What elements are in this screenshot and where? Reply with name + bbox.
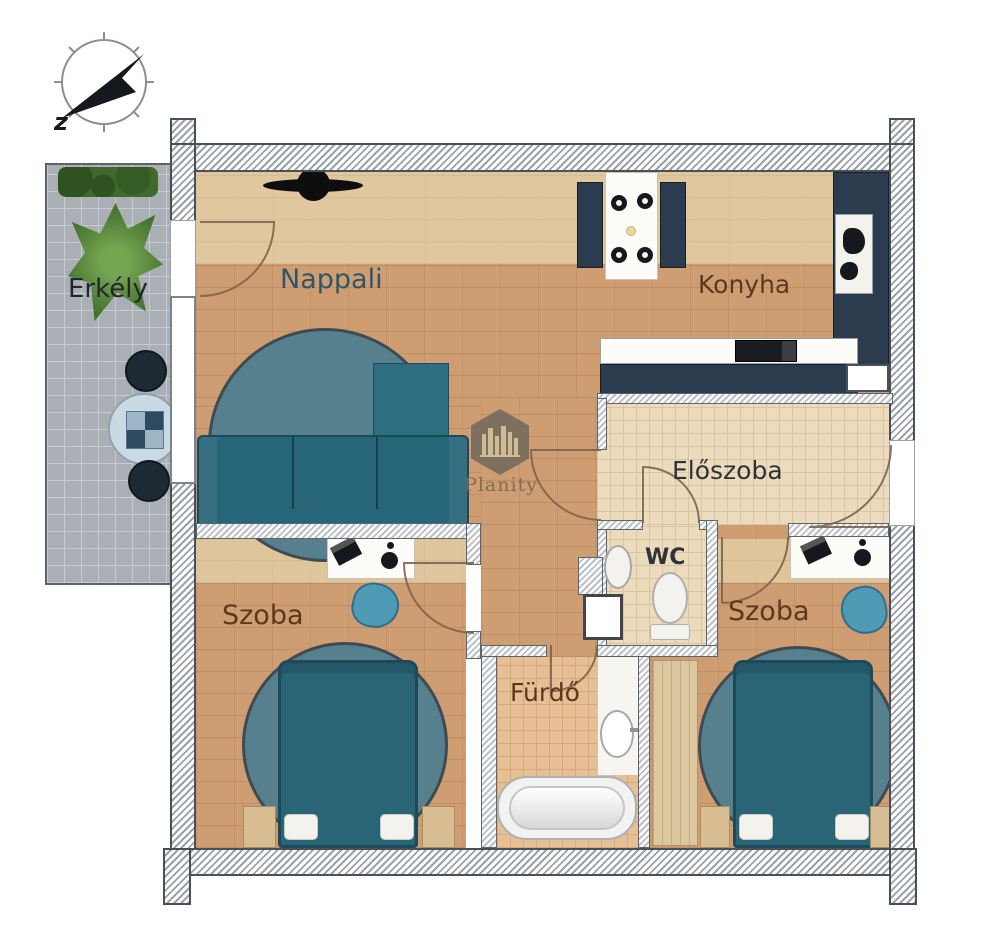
desk-stool-dot [387, 542, 394, 549]
plate [637, 193, 653, 209]
nightstand [243, 806, 276, 848]
desk-stool-dot [859, 539, 866, 546]
kitchen-label: Konyha [698, 270, 790, 299]
wardrobe [652, 660, 698, 846]
wall-wc-bottom [597, 645, 718, 657]
wall-kitchen-hallway [597, 393, 893, 404]
bedroom-left-label: Szoba [222, 600, 304, 631]
table-centerpiece [626, 226, 636, 236]
hedge-planter [58, 167, 158, 197]
wall-bathroom-left [481, 645, 497, 848]
sofa [197, 435, 469, 528]
wall-bathroom-top [481, 645, 547, 657]
desk-chair-icon [854, 549, 871, 566]
sink-faucet [840, 262, 858, 280]
wall-stub-shaft [578, 557, 603, 595]
hallway-label: Előszoba [672, 456, 783, 485]
balcony-window [170, 296, 196, 484]
sofa-chaise [373, 363, 449, 441]
sofa-seam [376, 437, 378, 509]
living-room-label: Nappali [280, 264, 383, 295]
wall-bottom [178, 848, 908, 876]
pillow [284, 814, 318, 840]
dishwasher [846, 364, 889, 392]
nightstand [870, 806, 890, 848]
toilet-bowl [652, 572, 688, 624]
pillow [835, 814, 869, 840]
sink-basin [843, 228, 865, 254]
wall-bedroom-left-right-a [466, 523, 481, 565]
balcony-label: Erkély [68, 274, 148, 304]
dining-bench-right [660, 182, 686, 268]
wall-wc-top-a [597, 520, 643, 530]
wall-living-bedroom-left [196, 523, 481, 539]
balcony-door-opening [170, 220, 196, 298]
kitchen-peninsula-counter [600, 338, 858, 364]
wall-wc-right [706, 520, 718, 657]
balcony-table-mosaic [126, 411, 164, 449]
wc-sink [604, 545, 632, 589]
wall-pier-bottom-right [889, 848, 917, 905]
desk-chair-icon [381, 552, 398, 569]
wall-bedroom-right-top [788, 523, 889, 537]
nightstand [700, 806, 730, 848]
watermark-brand-text: Planity [462, 474, 540, 496]
plate [611, 195, 627, 211]
dining-bench-left [577, 182, 603, 268]
wall-pier-bottom-left [163, 848, 191, 905]
balcony-chair [128, 460, 170, 502]
compass-needle [62, 54, 144, 118]
floor-plan: z [0, 0, 1000, 925]
entrance-door-opening [889, 440, 915, 526]
compass-icon: z [48, 26, 158, 136]
nightstand [422, 806, 455, 848]
wall-bathroom-right [638, 655, 650, 848]
wall-corridor-hallway [597, 398, 607, 450]
bathtub-basin [509, 786, 625, 830]
compass-letter: z [53, 108, 69, 136]
watermark-skyline-icon [479, 424, 521, 460]
wall-left-lower [170, 482, 196, 852]
pillow [739, 814, 773, 840]
cooktop [735, 340, 797, 362]
plate [637, 247, 653, 263]
kitchen-sink-unit [835, 214, 873, 294]
plate [611, 247, 627, 263]
wall-top [178, 143, 908, 172]
kitchen-peninsula-base [600, 364, 858, 395]
ceiling-fan-hub [297, 168, 330, 201]
wall-right-lower [889, 524, 915, 852]
sofa-seam [292, 437, 294, 509]
bedroom-right-label: Szoba [728, 596, 810, 627]
wc-label: WC [645, 545, 685, 570]
pillow [380, 814, 414, 840]
bathroom-sink [600, 710, 634, 758]
wall-left-upper [170, 143, 196, 222]
bathroom-label: Fürdő [510, 678, 580, 707]
utility-shaft [583, 594, 623, 640]
wall-bedroom-left-right-b [466, 631, 481, 659]
toilet-tank [650, 624, 690, 640]
balcony-chair [125, 350, 167, 392]
